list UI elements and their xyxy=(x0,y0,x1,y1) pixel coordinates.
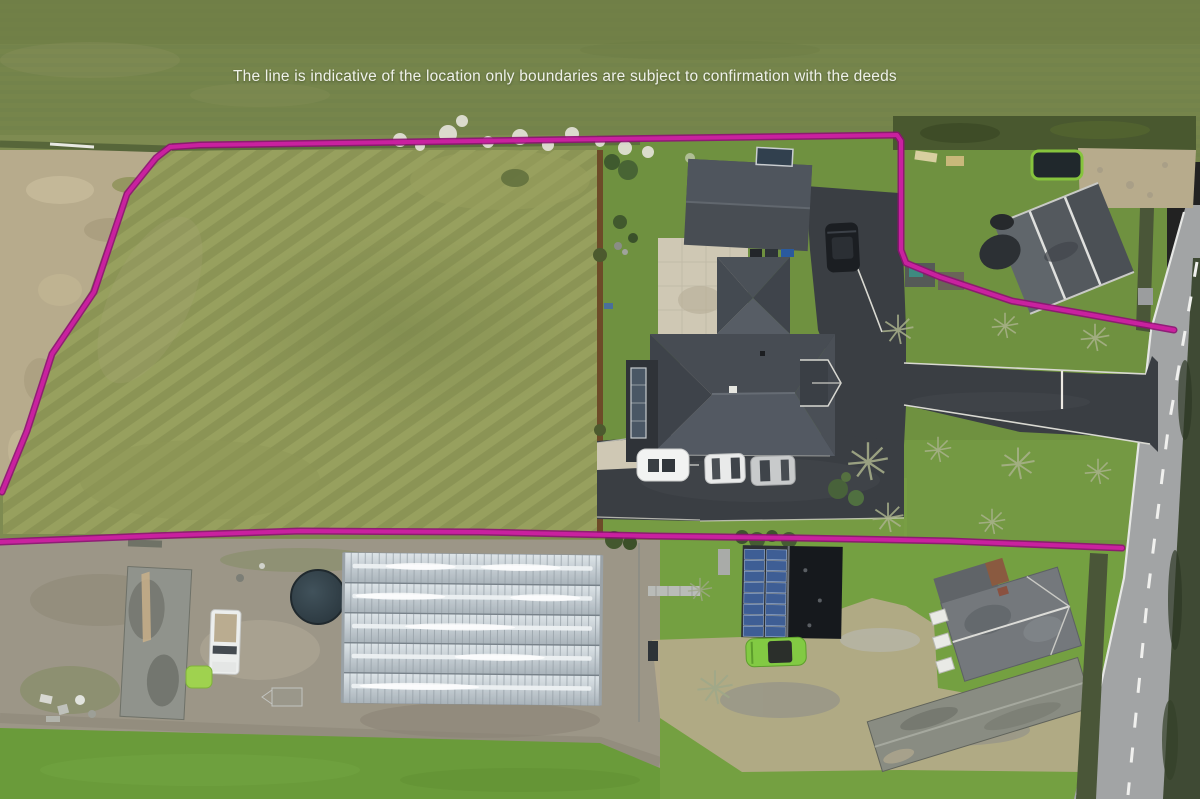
garage-rooflight xyxy=(756,147,793,166)
chimney xyxy=(729,386,737,393)
pickup-truck xyxy=(209,609,241,674)
silver-car xyxy=(751,455,796,486)
bench xyxy=(718,549,730,575)
greenhouse-block xyxy=(342,553,602,706)
wheelbarrow xyxy=(604,303,613,309)
disclaimer-text: The line is indicative of the location o… xyxy=(233,68,897,86)
garden-gate xyxy=(1138,288,1153,305)
trampoline xyxy=(1032,151,1082,179)
southeast-lawn xyxy=(904,440,1144,540)
green-mower xyxy=(186,666,212,688)
aerial-property-photo: The line is indicative of the location o… xyxy=(0,0,1200,799)
lime-green-car xyxy=(746,637,807,667)
bin xyxy=(648,641,658,661)
white-car xyxy=(705,453,746,483)
storage-tank xyxy=(291,570,345,624)
long-shed xyxy=(120,566,192,719)
aerial-scene xyxy=(0,0,1200,799)
garden-table xyxy=(946,156,964,166)
solar-garage xyxy=(741,545,843,639)
bins xyxy=(750,249,794,257)
black-suv xyxy=(825,222,861,273)
solar-garage-east-slope xyxy=(787,546,843,639)
